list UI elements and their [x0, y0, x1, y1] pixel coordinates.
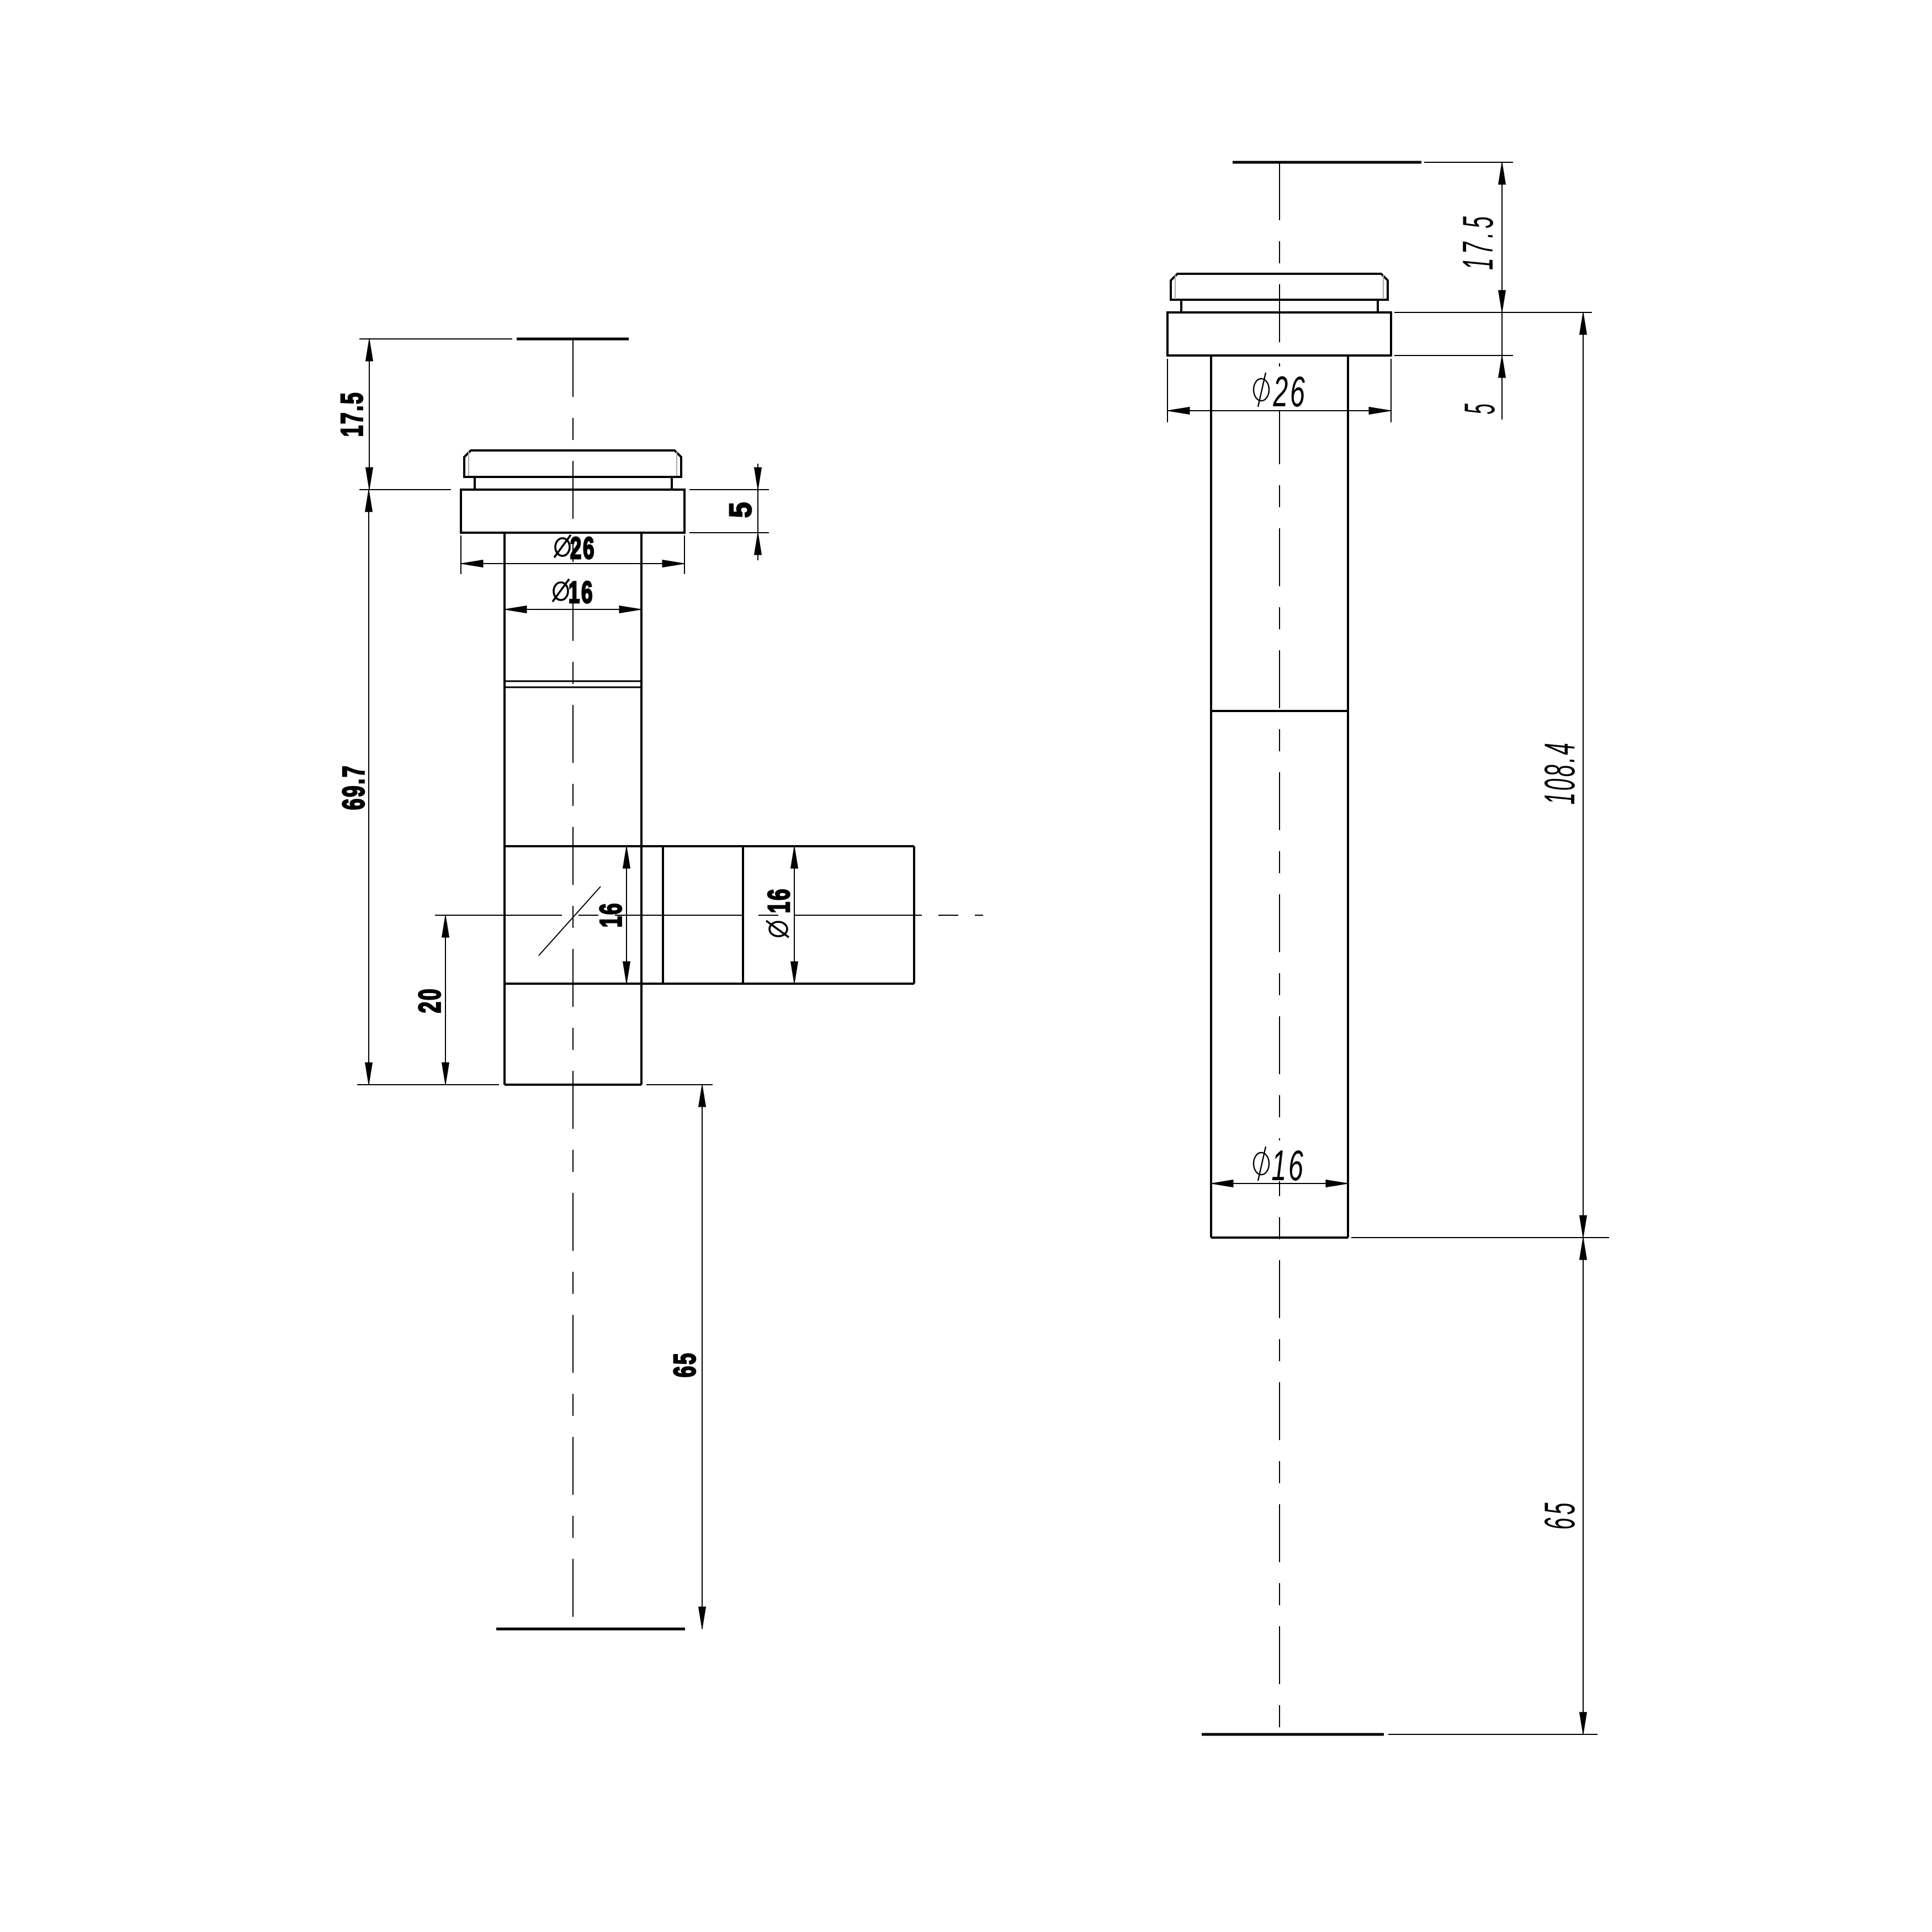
svg-text:20: 20 [413, 988, 448, 1013]
svg-text:16: 16 [594, 902, 629, 927]
svg-text:16: 16 [762, 888, 797, 913]
svg-text:26: 26 [1273, 367, 1307, 416]
svg-text:17.5: 17.5 [335, 391, 370, 437]
svg-text:16: 16 [569, 575, 594, 610]
svg-text:26: 26 [570, 531, 596, 566]
svg-text:5: 5 [724, 500, 758, 518]
svg-text:65: 65 [668, 1352, 703, 1377]
svg-text:108.4: 108.4 [1536, 741, 1584, 804]
svg-text:69.7: 69.7 [337, 765, 371, 810]
svg-text:17.5: 17.5 [1454, 213, 1502, 270]
svg-text:65: 65 [1536, 1500, 1584, 1530]
svg-text:5: 5 [1455, 404, 1504, 415]
svg-text:16: 16 [1271, 1141, 1305, 1190]
